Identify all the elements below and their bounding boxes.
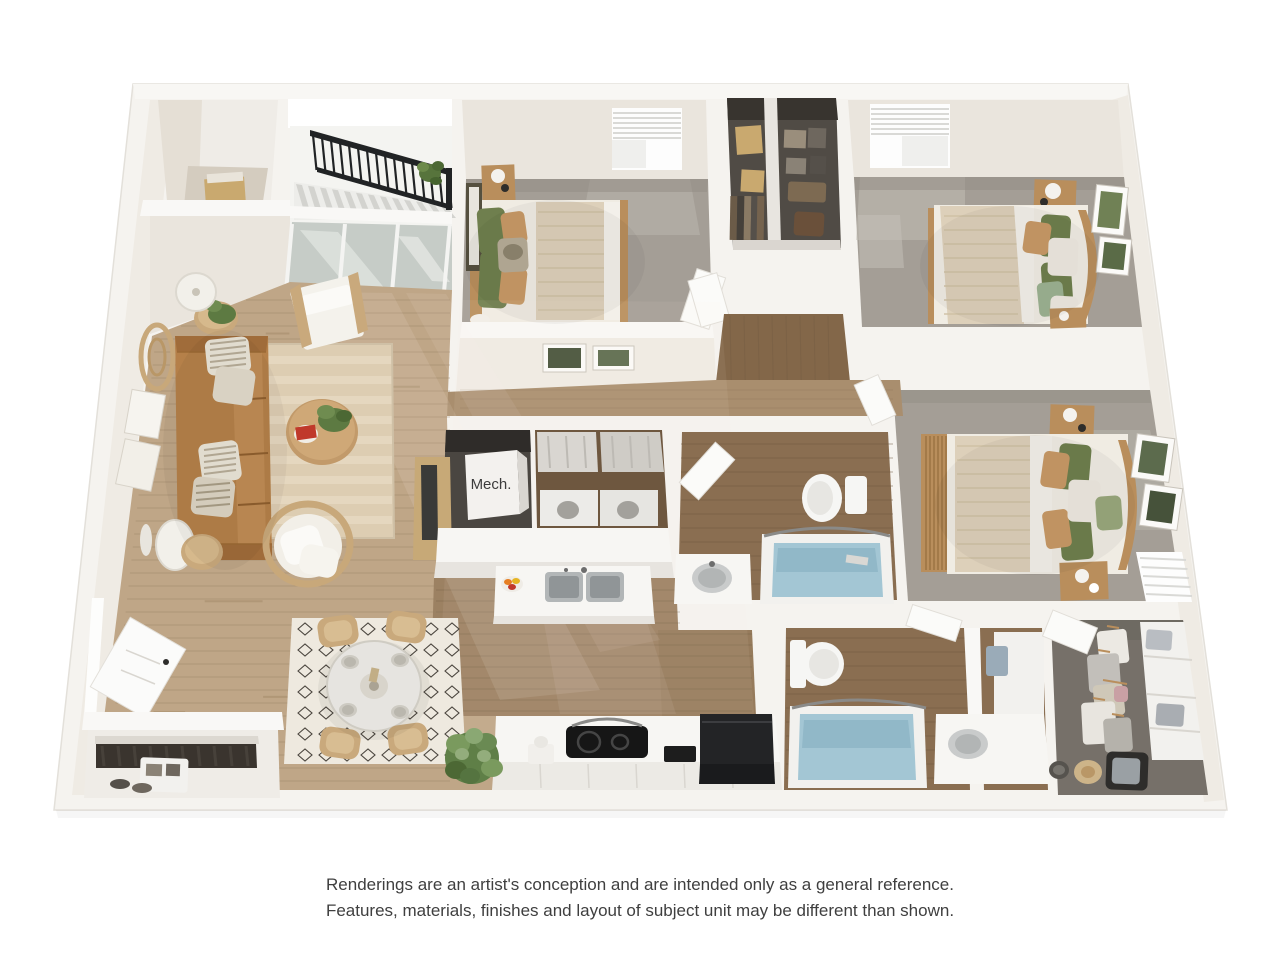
svg-text:Features, materials, finishes: Features, materials, finishes and layout… (326, 901, 954, 920)
svg-text:Mech.: Mech. (471, 476, 512, 493)
svg-text:Renderings are an artist's con: Renderings are an artist's conception an… (326, 875, 954, 894)
